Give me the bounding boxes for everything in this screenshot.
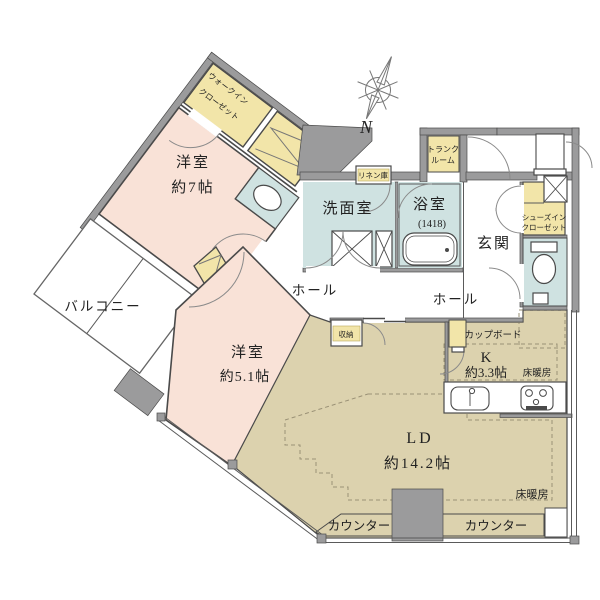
bathroom-size: (1418) [418, 219, 446, 230]
bathtub-icon [403, 233, 457, 265]
room51-size: 約5.1帖 [220, 369, 271, 385]
counter-left-label: カウンター [328, 519, 391, 533]
door-gap [518, 264, 524, 302]
floor-plan-page: ウォークイン クローゼット [0, 0, 600, 600]
ld-name: LD [406, 430, 433, 447]
toilet-box [533, 293, 548, 304]
door-leaf [452, 347, 464, 352]
ld-size: 約14.2帖 [384, 455, 452, 472]
toilet-tank-icon [531, 242, 557, 252]
bathroom-label: 浴室 [413, 196, 447, 213]
floor-heating-ld-label: 床暖房 [516, 487, 549, 501]
column [114, 369, 164, 416]
room7-size: 約7帖 [171, 179, 215, 196]
shoes-in-closet-label: シューズイン [522, 212, 567, 222]
washing-machine-icon [332, 231, 392, 267]
room7-name: 洋室 [176, 154, 210, 171]
trunk-room-label: トランク [427, 145, 459, 154]
floor-plan: ウォークイン クローゼット [0, 0, 600, 600]
washroom-label: 洗面室 [322, 200, 373, 217]
linen-label: リネン庫 [358, 170, 388, 180]
compass-icon [346, 48, 412, 127]
balcony-label: バルコニー [64, 299, 141, 314]
trunk-room [428, 136, 459, 172]
counter-right-label: カウンター [465, 519, 528, 533]
door-arc [496, 208, 521, 233]
storage-label: 収納 [339, 329, 354, 339]
compass-north-label: N [359, 117, 373, 137]
pipe-space-icon [544, 176, 567, 202]
refrigerator-space [449, 320, 466, 347]
floor-heating-k-label: 床暖房 [523, 367, 552, 379]
door-gap [306, 266, 380, 273]
column [392, 489, 443, 541]
hall-east-label: ホール [433, 292, 480, 307]
kitchen-name: K [481, 350, 494, 366]
toilet-bowl-icon [533, 255, 556, 284]
front-door-leaf [534, 169, 566, 175]
drain-icon [445, 248, 449, 252]
room51-name: 洋室 [231, 344, 265, 361]
trunk-room-label2: ルーム [431, 156, 455, 165]
cupboard-label: カップボード [464, 330, 521, 341]
hall-west-label: ホール [292, 283, 339, 298]
kitchen-size: 約3.3帖 [465, 365, 507, 380]
entrance-label: 玄関 [477, 235, 511, 252]
door-arc [496, 186, 521, 211]
shoes-in-closet-label2: クローゼット [522, 222, 567, 232]
niche [545, 508, 567, 537]
door-arc [489, 268, 520, 299]
entry-door-recess [536, 134, 564, 173]
